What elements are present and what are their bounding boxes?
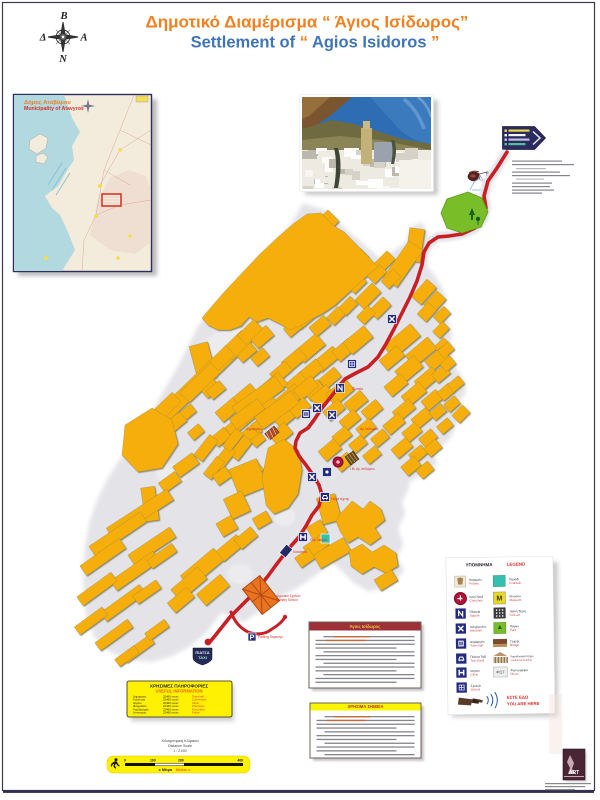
svg-text:A: A	[79, 33, 87, 44]
svg-text:School: School	[471, 687, 481, 691]
svg-text:◄ Μέτρα: ◄ Μέτρα	[158, 768, 173, 772]
svg-text:Πλατεία: Πλατεία	[352, 387, 363, 391]
svg-text:100: 100	[150, 759, 156, 763]
svg-text:ΥΠΟΜΝΗΜΑ: ΥΠΟΜΝΗΜΑ	[465, 562, 493, 567]
svg-text:Ήργα τέχνης: Ήργα τέχνης	[330, 497, 350, 501]
svg-text:LEGEND: LEGEND	[507, 562, 527, 567]
svg-text:Taxi stand: Taxi stand	[470, 658, 484, 662]
svg-text:YOU ARE HERE: YOU ARE HERE	[507, 701, 540, 706]
svg-text:TAXI: TAXI	[198, 655, 207, 660]
svg-text:Bridge: Bridge	[510, 643, 519, 647]
svg-text:Square: Square	[470, 613, 480, 617]
svg-text:Κοινότητα: Κοινότητα	[293, 550, 307, 554]
svg-text:Primary School: Primary School	[276, 598, 298, 602]
svg-text:P: P	[249, 633, 254, 642]
svg-text:Δημαρχείο: Δημαρχείο	[246, 427, 261, 431]
svg-text:Clinic: Clinic	[470, 673, 478, 677]
svg-text:Municipality of Atavyros: Municipality of Atavyros	[24, 106, 84, 112]
svg-text:ΧΡΗΣΙΜΑ ΣΗΜΕΙΑ: ΧΡΗΣΙΜΑ ΣΗΜΕΙΑ	[348, 704, 384, 709]
svg-text:B: B	[59, 11, 67, 22]
svg-text:Settlement of “ Agios Isidoro: Settlement of “ Agios Isidoros ”	[191, 34, 440, 52]
svg-text:Parking Παρκινγκ: Parking Παρκινγκ	[258, 635, 283, 639]
svg-text:N: N	[58, 54, 67, 65]
svg-text:ART: ART	[569, 770, 579, 776]
svg-text:Police: Police	[192, 711, 200, 715]
svg-text:Fountain: Fountain	[509, 581, 521, 585]
svg-text:Windmill: Windmill	[470, 628, 482, 632]
svg-text:Περ. Ιατρείο: Περ. Ιατρείο	[310, 538, 327, 542]
svg-text:Δημοτικό Διαμέρισμα “ Άγιος: Δημοτικό Διαμέρισμα “ Άγιος Ισίδωρος”	[146, 13, 469, 32]
svg-text:22460 xxxxx: 22460 xxxxx	[163, 711, 179, 715]
svg-text:Δ: Δ	[39, 33, 47, 44]
svg-text:USEFUL INFORMATION: USEFUL INFORMATION	[155, 689, 202, 694]
svg-text:Αστυνομία: Αστυνομία	[133, 711, 146, 715]
svg-text:Άγιος Ισίδωρος: Άγιος Ισίδωρος	[350, 624, 382, 629]
svg-text:Folk art: Folk art	[510, 613, 521, 617]
svg-text:Photo: Photo	[510, 672, 518, 676]
svg-text:0: 0	[124, 759, 126, 763]
svg-text:Park: Park	[510, 628, 517, 632]
svg-text:400: 400	[237, 759, 243, 763]
svg-text:Χιλιομετρική Κλίμακα: Χιλιομετρική Κλίμακα	[161, 738, 199, 743]
svg-text:Churches: Churches	[469, 598, 483, 602]
svg-text:Ι.Μ. Αγ. Ισιδώρου: Ι.Μ. Αγ. Ισιδώρου	[350, 467, 375, 471]
svg-text:Town hall: Town hall	[470, 643, 483, 647]
svg-text:Παραδοσιακό Κτίριο: Παραδοσιακό Κτίριο	[510, 654, 534, 658]
svg-text:Pottery: Pottery	[469, 581, 479, 585]
svg-text:Traditional building: Traditional building	[510, 658, 532, 662]
svg-text:Meters ►: Meters ►	[176, 768, 191, 772]
svg-text:Distance Scale: Distance Scale	[168, 744, 192, 748]
svg-text:M: M	[496, 595, 502, 602]
svg-text:ΕΣΤΕ ΕΔΩ: ΕΣΤΕ ΕΔΩ	[507, 695, 529, 700]
svg-text:1 : 2.000: 1 : 2.000	[173, 749, 186, 753]
svg-text:Museum: Museum	[509, 598, 521, 602]
svg-text:Αγ. Ισίδωρος: Αγ. Ισίδωρος	[360, 427, 379, 431]
svg-text:ΦΩΤ: ΦΩΤ	[496, 669, 505, 674]
svg-text:200: 200	[178, 759, 184, 763]
